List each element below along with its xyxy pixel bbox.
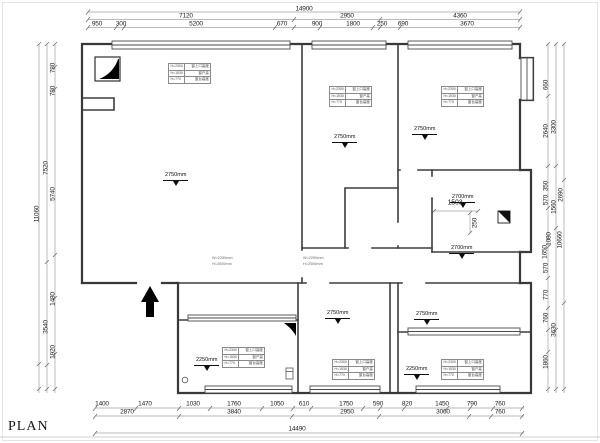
dim-label: 610: [299, 401, 309, 408]
dim-label: 2870: [120, 409, 134, 416]
level-marker: 2700mm: [450, 186, 475, 208]
dim-label: 690: [398, 21, 408, 28]
room-info-table: H=2300窗上口高度 H=1530窗户高 H=770窗台高度: [441, 86, 484, 107]
level-marker: 2750mm: [325, 302, 350, 324]
switch-box-icon: [286, 368, 293, 379]
level-marker: 2750mm: [332, 126, 357, 148]
info-code: H=770: [169, 77, 185, 84]
dim-label: 3630: [551, 323, 558, 337]
dim-label: 770: [543, 290, 550, 300]
level-value: 2250mm: [404, 367, 429, 375]
info-code: H=1530: [442, 93, 458, 100]
info-code: H=1530: [169, 70, 185, 77]
dim-label: 1470: [138, 401, 152, 408]
dim-label: 570: [543, 195, 550, 205]
level-value: 2750mm: [163, 173, 188, 181]
info-label: 窗上口高度: [458, 360, 484, 367]
dim-label: 1760: [227, 401, 241, 408]
level-marker: 2750mm: [163, 164, 188, 186]
note-line: W=2250mm: [303, 256, 324, 262]
room-info-table: H=2300窗上口高度 H=1530窗户高 H=770窗台高度: [441, 359, 484, 380]
dim-label: 5740: [50, 187, 57, 201]
dim-label: 1400: [95, 401, 109, 408]
drain-icon: [182, 377, 188, 383]
note-line: W=2250mm: [212, 256, 233, 262]
dim-label: 760: [495, 401, 505, 408]
dim-label: 820: [402, 401, 412, 408]
level-value: 2250mm: [194, 358, 219, 366]
room-info-table: H=2300窗上口高度 H=1530窗户高 H=770窗台高度: [329, 86, 372, 107]
info-label: 窗上口高度: [458, 87, 484, 94]
info-label: 窗台高度: [185, 77, 211, 84]
level-triangle-icon: [204, 366, 210, 371]
dim-label: 590: [373, 401, 383, 408]
dim-label: 2950: [340, 13, 354, 20]
dim-label: 1920: [50, 345, 57, 359]
level-triangle-icon: [422, 135, 428, 140]
level-marker: 2250mm: [194, 349, 219, 371]
dim-label: 7120: [179, 13, 193, 20]
dim-label: 1480: [50, 292, 57, 306]
info-label: 窗上口高度: [239, 348, 265, 355]
dim-label: 11060: [34, 206, 41, 223]
dim-label: 7520: [43, 161, 50, 175]
level-triangle-icon: [460, 203, 466, 208]
info-code: H=1530: [333, 366, 349, 373]
dim-label: 1560: [551, 200, 558, 214]
info-code: H=2300: [169, 64, 185, 71]
level-value: 2700mm: [450, 195, 475, 203]
dim-label: 760: [543, 313, 550, 323]
corner-shade-icon: [284, 323, 296, 336]
info-code: H=770: [442, 100, 458, 107]
note-opening-size: W=2250mm H=2000mm: [303, 256, 324, 267]
info-label: 窗台高度: [458, 100, 484, 107]
info-code: H=2300: [442, 87, 458, 94]
dim-label: 670: [277, 21, 287, 28]
info-code: H=1530: [223, 354, 239, 361]
dim-label: 790: [467, 401, 477, 408]
dim-label: 3060: [436, 409, 450, 416]
room-info-table: H=2300窗上口高度 H=1530窗户高 H=770窗台高度: [168, 63, 211, 84]
info-label: 窗上口高度: [349, 360, 375, 367]
level-marker: 2750mm: [414, 303, 439, 325]
info-label: 窗户高: [458, 366, 484, 373]
dim-label: 760: [495, 409, 505, 416]
info-label: 窗上口高度: [185, 64, 211, 71]
info-label: 窗台高度: [346, 100, 372, 107]
dim-label: 14490: [288, 426, 305, 433]
dim-label: 3840: [227, 409, 241, 416]
floor-plan-page: 14900 7120 2950 4360 950 300 5200 670 90…: [0, 0, 600, 443]
level-triangle-icon: [335, 319, 341, 324]
note-opening-size: W=2250mm H=2000mm: [212, 256, 233, 267]
entry-arrow-icon: [141, 286, 159, 317]
dim-label: 10660: [557, 231, 564, 248]
info-label: 窗台高度: [239, 361, 265, 368]
level-marker: 2700mm: [449, 237, 474, 259]
dim-label: 1050: [270, 401, 284, 408]
info-code: H=770: [442, 373, 458, 380]
dim-label: 2640: [543, 124, 550, 138]
level-marker: 2750mm: [412, 118, 437, 140]
dim-label: 950: [92, 21, 102, 28]
info-label: 窗台高度: [458, 373, 484, 380]
info-label: 窗户高: [349, 366, 375, 373]
info-label: 窗户高: [346, 93, 372, 100]
info-label: 窗上口高度: [346, 87, 372, 94]
dim-label: 5200: [189, 21, 203, 28]
dim-label-inner-height: 250: [472, 218, 479, 228]
level-triangle-icon: [342, 143, 348, 148]
info-code: H=770: [330, 100, 346, 107]
dim-label: 1030: [186, 401, 200, 408]
info-label: 窗户高: [185, 70, 211, 77]
level-value: 2700mm: [449, 246, 474, 254]
level-value: 2750mm: [414, 312, 439, 320]
dim-label: 300: [116, 21, 126, 28]
dim-label: 1860: [543, 355, 550, 369]
note-line: H=2000mm: [303, 262, 324, 268]
info-code: H=2300: [333, 360, 349, 367]
dim-label: 900: [312, 21, 322, 28]
dim-label: 1650: [542, 245, 549, 259]
floor-plan-canvas: [0, 0, 600, 443]
level-triangle-icon: [424, 320, 430, 325]
dim-label: 3670: [460, 21, 474, 28]
dim-label: 250: [377, 21, 387, 28]
level-value: 2750mm: [332, 135, 357, 143]
room-info-table: H=2300窗上口高度 H=1530窗户高 H=770窗台高度: [332, 359, 375, 380]
info-label: 窗台高度: [349, 373, 375, 380]
dim-label: 1080: [546, 232, 553, 246]
info-code: H=2300: [330, 87, 346, 94]
dim-label: 3540: [43, 320, 50, 334]
info-code: H=2300: [223, 348, 239, 355]
dim-label: 14900: [295, 6, 312, 13]
dim-label: 2950: [340, 409, 354, 416]
level-triangle-icon: [414, 375, 420, 380]
dim-label: 1800: [346, 21, 360, 28]
info-code: H=2300: [442, 360, 458, 367]
plan-title: PLAN: [8, 419, 49, 435]
room-info-table: H=2300窗上口高度 H=1530窗户高 H=770窗台高度: [222, 347, 265, 368]
dim-label: 1750: [339, 401, 353, 408]
info-label: 窗户高: [458, 93, 484, 100]
dim-label: 780: [50, 63, 57, 73]
info-code: H=1530: [442, 366, 458, 373]
dim-label: 4360: [453, 13, 467, 20]
level-triangle-icon: [173, 181, 179, 186]
dim-label: 1450: [435, 401, 449, 408]
info-code: H=770: [223, 361, 239, 368]
note-line: H=2000mm: [212, 262, 233, 268]
level-value: 2750mm: [325, 311, 350, 319]
dim-label: 3300: [551, 120, 558, 134]
dim-label: 780: [50, 86, 57, 96]
dim-label: 2690: [558, 188, 565, 202]
info-code: H=770: [333, 373, 349, 380]
dim-label: 570: [543, 263, 550, 273]
level-value: 2750mm: [412, 127, 437, 135]
level-triangle-icon: [459, 254, 465, 259]
level-marker: 2250mm: [404, 358, 429, 380]
info-code: H=1530: [330, 93, 346, 100]
dim-label: 350: [543, 181, 550, 191]
info-label: 窗户高: [239, 354, 265, 361]
dim-label: 660: [543, 80, 550, 90]
